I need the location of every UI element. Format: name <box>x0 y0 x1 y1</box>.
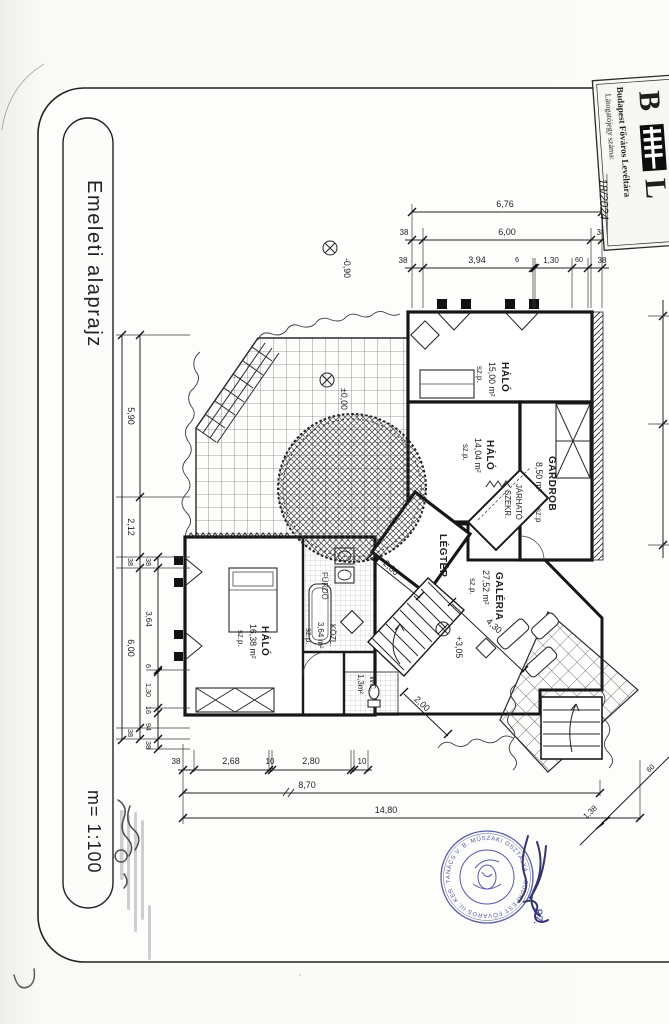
svg-text:94: 94 <box>144 723 153 731</box>
svg-text:sz.p.: sz.p. <box>304 628 313 644</box>
svg-text:38: 38 <box>598 256 607 265</box>
svg-text:1,30: 1,30 <box>144 683 153 697</box>
svg-text:2,12: 2,12 <box>126 518 136 536</box>
svg-text:6,76: 6,76 <box>496 199 514 209</box>
svg-text:+3,05: +3,05 <box>454 636 464 658</box>
svg-text:38: 38 <box>144 741 153 749</box>
room-label-legter: LÉGTÉR <box>437 534 450 578</box>
svg-text:60: 60 <box>575 255 583 264</box>
room-label-halo15: HÁLÓ <box>499 362 512 392</box>
svg-text:6: 6 <box>144 664 153 668</box>
svg-text:sz.p.: sz.p. <box>461 444 470 460</box>
room-label-halo16: HÁLÓ <box>259 626 272 656</box>
svg-text:10: 10 <box>358 757 367 766</box>
svg-text:8,70: 8,70 <box>298 780 316 790</box>
svg-text:1,30: 1,30 <box>543 256 559 265</box>
hatched-wall <box>592 312 603 560</box>
svg-text:2,68: 2,68 <box>222 756 240 766</box>
svg-text:15,00 m²: 15,00 m² <box>487 362 497 397</box>
scanned-floor-plan-page: Emeleti alaprajz m= 1:100 <box>0 0 669 1024</box>
svg-text:3,64 m²: 3,64 m² <box>316 622 325 649</box>
handwritten-corner-mark <box>14 969 34 988</box>
svg-text:1,3m²: 1,3m² <box>356 674 365 694</box>
svg-text:27,52 m²: 27,52 m² <box>481 570 491 605</box>
svg-text:sz:p: sz:p <box>534 508 543 523</box>
svg-text:L: L <box>638 177 669 199</box>
room-label-furdo: FÜRDŐ <box>320 572 329 600</box>
svg-text:SZEKR.: SZEKR. <box>503 490 512 518</box>
cabinet <box>196 688 274 712</box>
svg-text:5,90: 5,90 <box>126 407 136 425</box>
svg-text:sz.p.: sz.p. <box>468 578 477 594</box>
svg-text:38: 38 <box>172 757 181 766</box>
svg-text:3,64: 3,64 <box>144 611 153 627</box>
svg-text:6,00: 6,00 <box>498 227 516 237</box>
svg-text:16: 16 <box>144 706 153 714</box>
bed <box>229 568 277 632</box>
room-label-gardrob: GARDROB <box>546 456 557 511</box>
svg-text:8,50 m²: 8,50 m² <box>534 462 544 492</box>
handwritten-year: 87. <box>531 908 545 925</box>
svg-text:38: 38 <box>399 256 408 265</box>
svg-text:6,00: 6,00 <box>126 639 136 657</box>
svg-text:38: 38 <box>400 228 409 237</box>
page-title: Emeleti alaprajz <box>83 180 105 348</box>
svg-text:14,04 m²: 14,04 m² <box>473 438 483 473</box>
tree <box>278 414 426 562</box>
svg-text:sz.p.: sz.p. <box>236 630 245 646</box>
room-label-kozl: KÖZL. <box>328 624 337 647</box>
svg-text:16,38 m²: 16,38 m² <box>248 624 258 659</box>
svg-text:38: 38 <box>126 558 135 566</box>
svg-text:6: 6 <box>515 255 519 264</box>
scale-label: m= 1:100 <box>84 790 104 874</box>
svg-text:3,94: 3,94 <box>468 255 486 265</box>
svg-text:10: 10 <box>266 757 275 766</box>
room-label-jarhato: JÁRHATÓ <box>514 484 523 520</box>
svg-text:14,80: 14,80 <box>375 805 398 815</box>
svg-text:B: B <box>632 90 666 112</box>
room-label-wc: WC. <box>368 676 377 691</box>
svg-text:sz.p.: sz.p. <box>475 366 484 382</box>
svg-text:±0,00: ±0,00 <box>339 388 349 410</box>
svg-text:38: 38 <box>126 729 135 737</box>
svg-text:2,80: 2,80 <box>302 756 320 766</box>
room-label-galeria: GALÉRIA <box>493 572 506 621</box>
svg-text:-0,90: -0,90 <box>342 258 352 278</box>
visitor-ticket-number: 18/2024 <box>596 178 609 220</box>
title-block: Emeleti alaprajz m= 1:100 <box>63 118 113 908</box>
room-label-halo14: HÁLÓ <box>484 440 497 470</box>
svg-text:38: 38 <box>144 558 153 566</box>
exterior-stair <box>541 697 602 759</box>
